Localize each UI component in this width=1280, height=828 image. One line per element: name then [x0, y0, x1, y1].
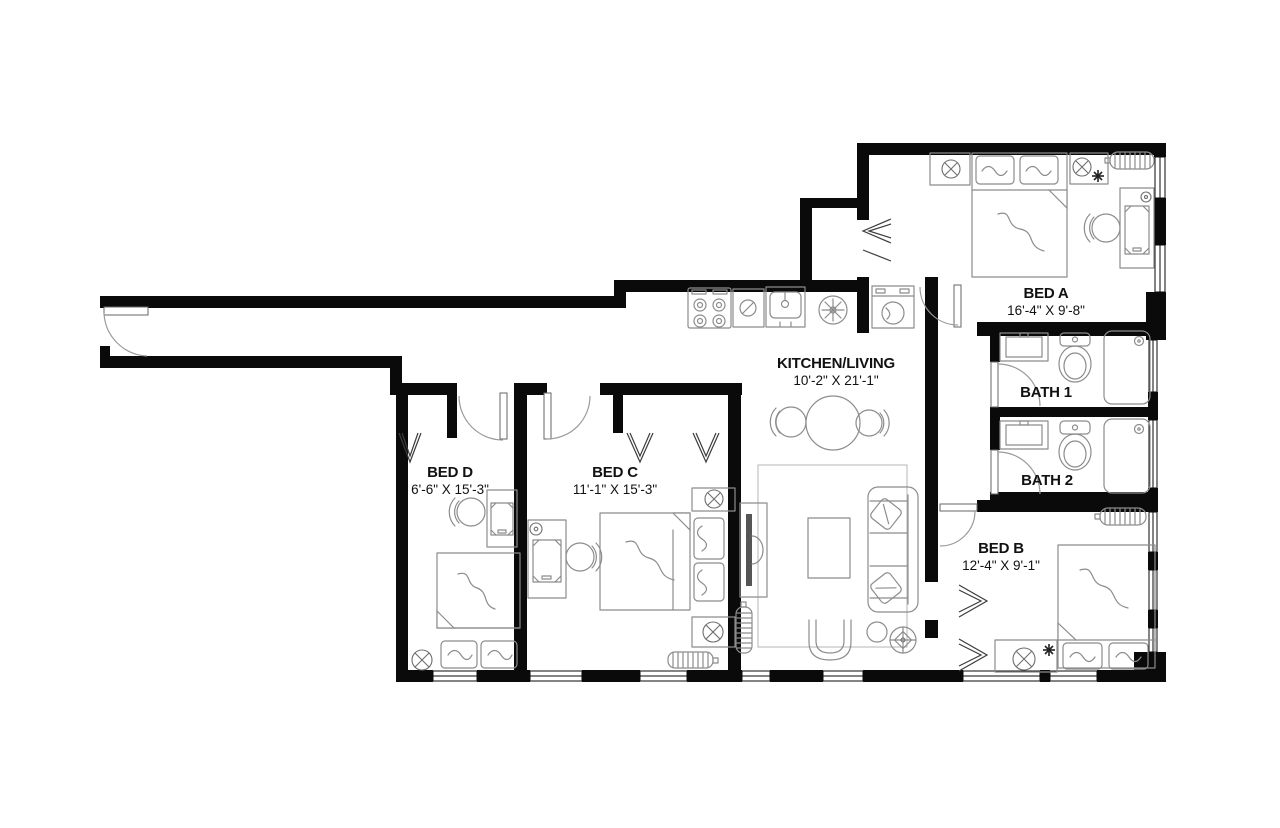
- table-lamp-icon: [1073, 158, 1091, 176]
- bed-d-furniture: [412, 490, 520, 670]
- dining-chair: [856, 410, 889, 436]
- kitchen-appliances: [688, 286, 914, 328]
- table-lamp-icon: [412, 650, 432, 670]
- bathroom-vanity: [1000, 421, 1048, 449]
- desk-chair: [449, 498, 485, 526]
- floor-plan: BED A 16'-4" X 9'-8" KITCHEN/LIVING 10'-…: [0, 0, 1280, 828]
- double-bed: [972, 153, 1067, 277]
- room-label-bed-b: BED B 12'-4" X 9'-1": [962, 541, 1040, 573]
- double-bed: [600, 513, 724, 610]
- table-lamp-icon: [1013, 648, 1035, 670]
- room-label-kitchen-living: KITCHEN/LIVING 10'-2" X 21'-1": [777, 356, 895, 388]
- potted-plant-icon: [890, 627, 916, 653]
- bed-b-closet-bifold-doors: [959, 585, 987, 671]
- sofa: [868, 487, 918, 612]
- bed-c-door-swing: [544, 393, 590, 439]
- dining-table: [806, 396, 860, 450]
- bed-b-door-swing: [940, 504, 977, 546]
- doors: [104, 219, 1040, 671]
- floor-plan-drawing: [0, 0, 1280, 828]
- room-dimensions: 11'-1" X 15'-3": [573, 482, 657, 497]
- room-label-bath-1: BATH 1: [1020, 385, 1072, 401]
- range-stove-icon: [688, 288, 731, 328]
- bed-c-furniture: [528, 488, 735, 668]
- shower-icon: [1104, 331, 1150, 404]
- room-name: BED B: [962, 541, 1040, 557]
- double-bed: [437, 553, 520, 668]
- living-room-furniture: [736, 396, 918, 660]
- room-label-bed-a: BED A 16'-4" X 9'-8": [1007, 286, 1085, 318]
- room-name: BED A: [1007, 286, 1085, 302]
- bed-b-furniture: [995, 508, 1155, 672]
- bed-c-closet-bifold-doors: [627, 433, 719, 462]
- room-name: BED D: [411, 465, 489, 481]
- nightstand: [930, 153, 970, 185]
- throw-pillow: [869, 497, 903, 531]
- desk: [1120, 188, 1154, 268]
- room-label-bed-c: BED C 11'-1" X 15'-3": [573, 465, 657, 497]
- room-label-bed-d: BED D 6'-6" X 15'-3": [411, 465, 489, 497]
- coffee-table: [808, 518, 850, 578]
- room-name: BED C: [573, 465, 657, 481]
- armchair: [809, 620, 851, 660]
- plant-icon: [1043, 644, 1055, 656]
- dishwasher-icon: [733, 289, 764, 327]
- bed-a-furniture: [930, 152, 1154, 277]
- throw-pillow: [869, 571, 903, 605]
- plant-icon: [1092, 170, 1104, 182]
- ceiling-fan-icon: [819, 296, 847, 324]
- bed-a-bifold-door: [863, 219, 891, 261]
- kitchen-sink-icon: [766, 287, 805, 327]
- toilet-icon: [1059, 421, 1091, 470]
- bathroom-vanity: [1000, 333, 1048, 361]
- walls: [100, 143, 1166, 682]
- room-dimensions: 6'-6" X 15'-3": [411, 482, 489, 497]
- room-label-bath-2: BATH 2: [1021, 473, 1073, 489]
- side-table: [867, 622, 887, 642]
- room-name: BATH 2: [1021, 473, 1073, 489]
- desk: [487, 490, 517, 547]
- room-dimensions: 12'-4" X 9'-1": [962, 558, 1040, 573]
- nightstand: [995, 640, 1057, 672]
- table-lamp-icon: [942, 160, 960, 178]
- desk-chair: [566, 543, 602, 571]
- washer-dryer-icon: [872, 286, 914, 328]
- room-name: KITCHEN/LIVING: [777, 356, 895, 372]
- tv-console: [740, 503, 767, 597]
- room-dimensions: 16'-4" X 9'-8": [1007, 303, 1085, 318]
- area-rug: [758, 465, 907, 647]
- toilet-icon: [1059, 333, 1091, 382]
- table-lamp-icon: [703, 622, 723, 642]
- bed-d-door-swing: [459, 393, 507, 440]
- room-dimensions: 10'-2" X 21'-1": [777, 373, 895, 388]
- dining-chair: [770, 407, 806, 437]
- desk: [528, 520, 566, 598]
- radiator-icon: [668, 652, 718, 668]
- shower-icon: [1104, 419, 1150, 493]
- windows: [433, 157, 1165, 681]
- table-lamp-icon: [705, 490, 723, 508]
- table-lamp-icon: [530, 523, 542, 535]
- entry-door-swing: [104, 307, 148, 356]
- room-name: BATH 1: [1020, 385, 1072, 401]
- double-bed: [1058, 545, 1155, 669]
- desk-chair: [1084, 214, 1120, 242]
